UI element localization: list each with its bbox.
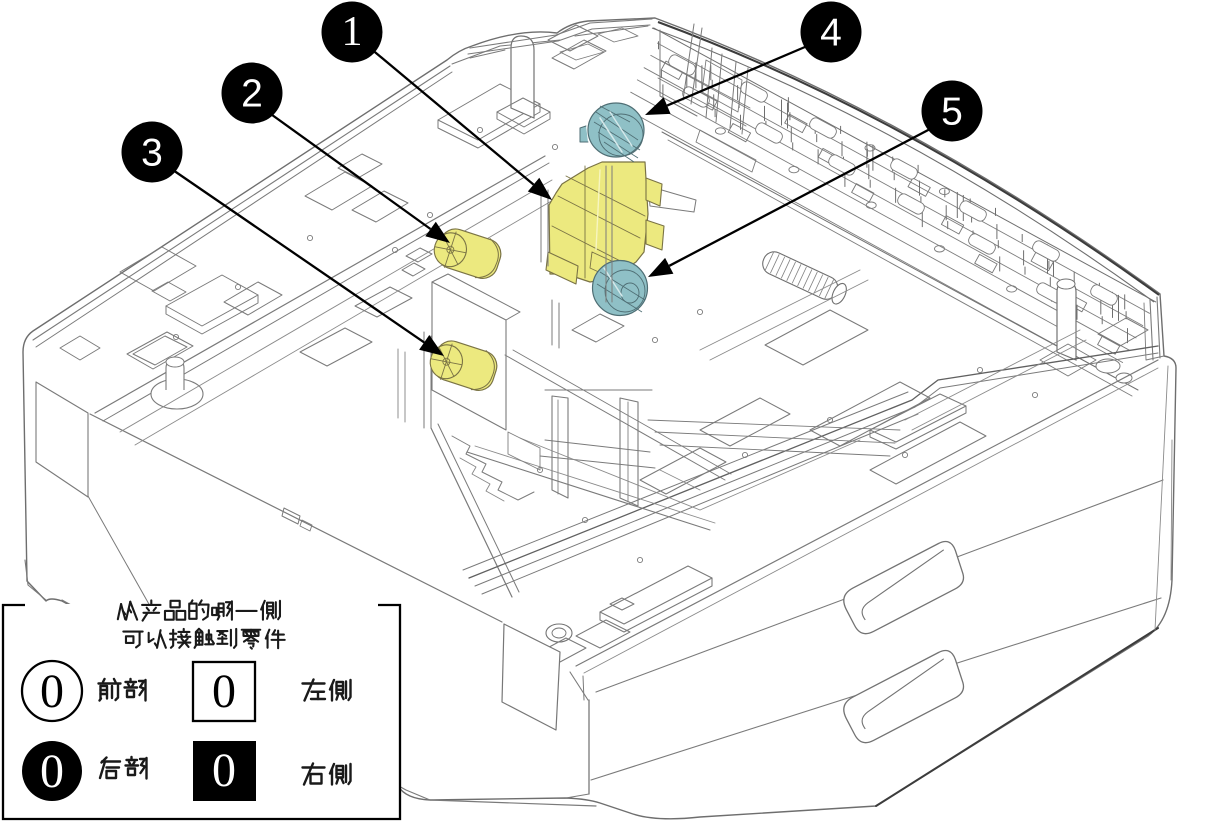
svg-text:0: 0: [40, 745, 64, 798]
svg-text:0: 0: [212, 744, 236, 797]
svg-text:1: 1: [342, 9, 363, 55]
svg-text:0: 0: [40, 665, 64, 718]
svg-text:3: 3: [141, 132, 163, 175]
svg-text:2: 2: [241, 73, 263, 116]
svg-text:4: 4: [820, 12, 842, 55]
svg-text:5: 5: [941, 91, 963, 134]
svg-text:0: 0: [212, 665, 236, 718]
